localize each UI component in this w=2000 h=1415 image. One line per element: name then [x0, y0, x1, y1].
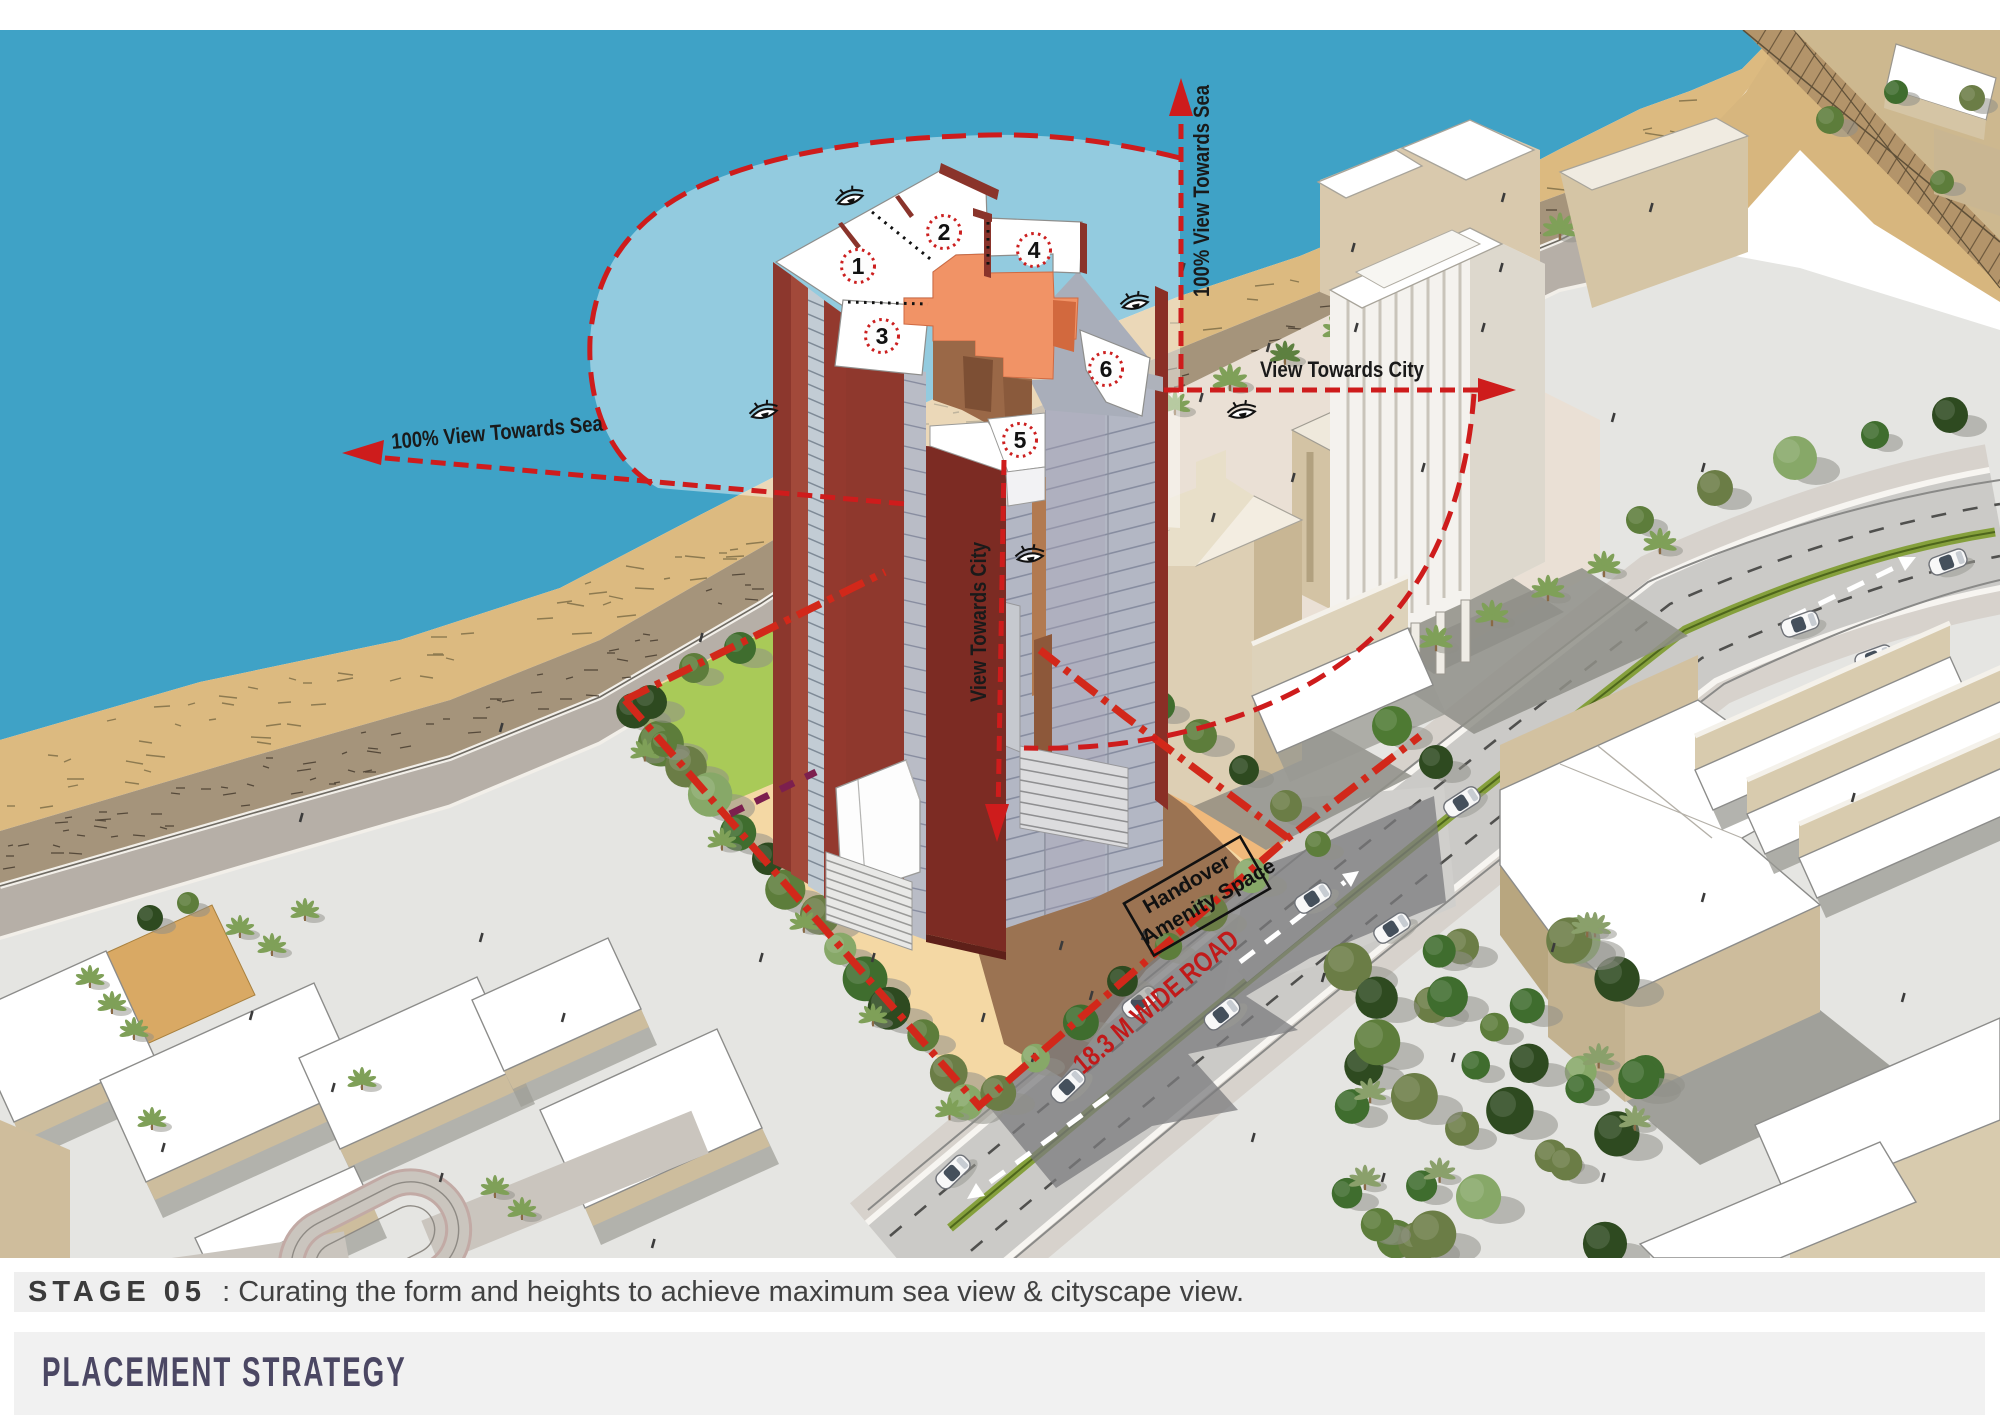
svg-text:1: 1	[852, 253, 865, 279]
svg-text:4: 4	[1028, 237, 1041, 263]
svg-text:5: 5	[1014, 427, 1027, 453]
svg-text:View Towards City: View Towards City	[1260, 357, 1425, 382]
svg-text:2: 2	[938, 219, 951, 245]
svg-text:View Towards City: View Towards City	[966, 541, 991, 702]
svg-text:6: 6	[1100, 356, 1113, 382]
svg-text:3: 3	[876, 323, 889, 349]
svg-text:100% View Towards Sea: 100% View Towards Sea	[1189, 84, 1214, 297]
